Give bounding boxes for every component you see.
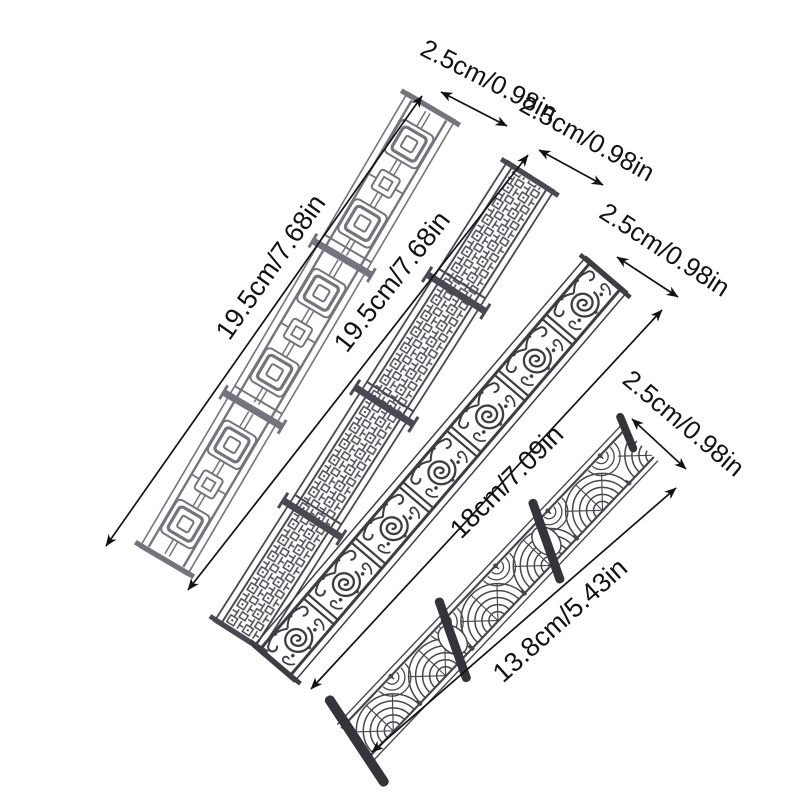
page-background: 19.5cm/7.68in 19.5cm/7.68in 18cm/7.09in … — [0, 0, 800, 800]
width-label-strip-2: 2.5cm/0.98in — [515, 89, 660, 187]
dimension-annotations: 19.5cm/7.68in 19.5cm/7.68in 18cm/7.09in … — [106, 33, 750, 752]
product-diagram-canvas: 19.5cm/7.68in 19.5cm/7.68in 18cm/7.09in … — [0, 0, 800, 800]
